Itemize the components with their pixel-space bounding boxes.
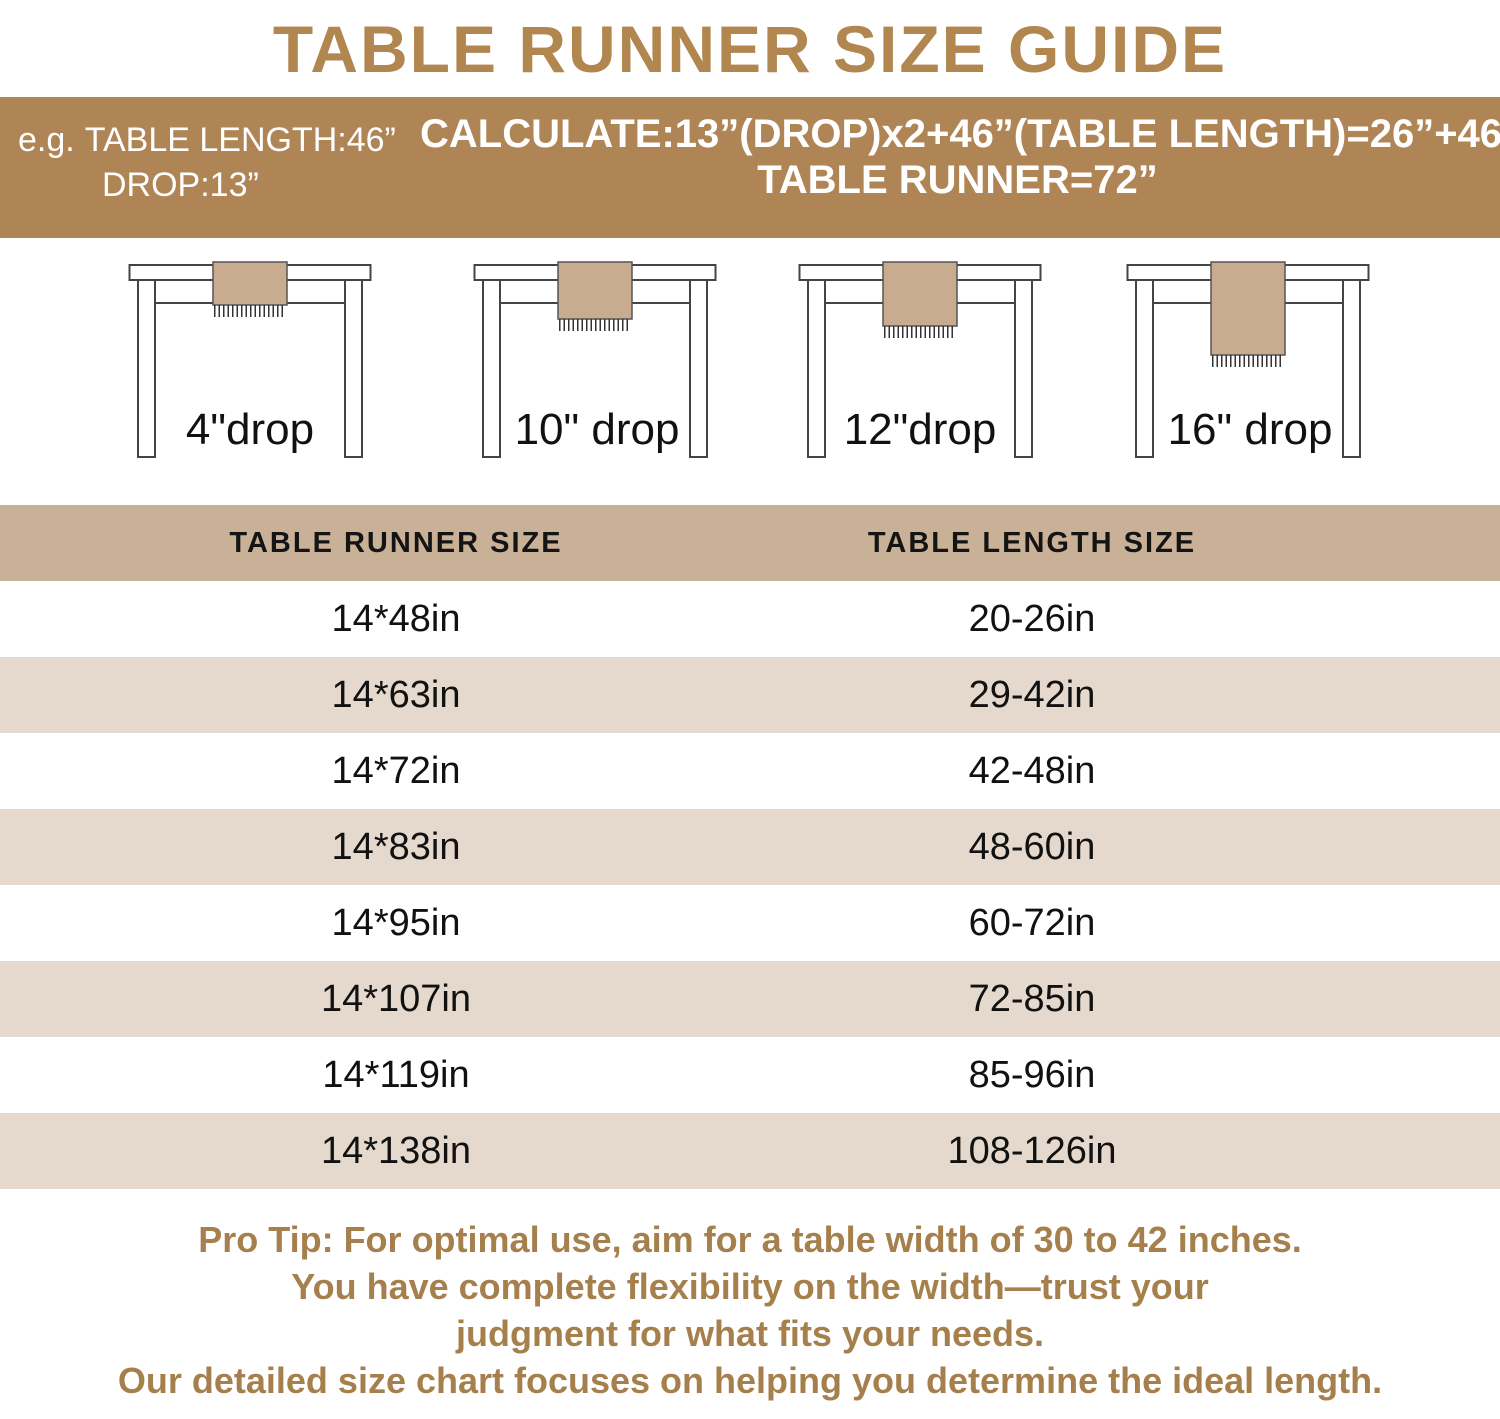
page-title: TABLE RUNNER SIZE GUIDE [0, 0, 1500, 97]
runner-size-cell: 14*138in [321, 1113, 471, 1189]
size-table-header-row: TABLE RUNNER SIZE TABLE LENGTH SIZE [0, 505, 1500, 581]
length-size-header: TABLE LENGTH SIZE [868, 505, 1196, 581]
drop-diagrams: 4"drop 10" drop 12"drop 16" drop [0, 240, 1500, 505]
calc-result: TABLE RUNNER=72” [420, 157, 1495, 203]
example-table-length-line: e.g.TABLE LENGTH:46” [18, 118, 396, 163]
runner-size-cell: 14*83in [332, 809, 461, 885]
length-size-cell: 108-126in [947, 1113, 1116, 1189]
length-size-cell: 85-96in [969, 1037, 1096, 1113]
example-prefix: e.g. [18, 121, 75, 159]
example-drop: DROP:13” [18, 163, 396, 208]
runner-size-cell: 14*119in [322, 1037, 469, 1113]
length-size-cell: 29-42in [969, 657, 1096, 733]
table-row: 14*138in 108-126in [0, 1113, 1500, 1189]
pro-tip-line-1: Pro Tip: For optimal use, aim for a tabl… [0, 1216, 1500, 1263]
size-guide-infographic: TABLE RUNNER SIZE GUIDE e.g.TABLE LENGTH… [0, 0, 1500, 1419]
pro-tip-line-4: Our detailed size chart focuses on helpi… [0, 1357, 1500, 1404]
drop-label-10in: 10" drop [515, 405, 680, 455]
table-row: 14*72in 42-48in [0, 733, 1500, 809]
length-size-cell: 48-60in [969, 809, 1096, 885]
runner-size-cell: 14*72in [332, 733, 461, 809]
runner-size-cell: 14*95in [332, 885, 461, 961]
runner-size-cell: 14*48in [332, 581, 461, 657]
runner-size-header: TABLE RUNNER SIZE [229, 505, 562, 581]
table-row: 14*95in 60-72in [0, 885, 1500, 961]
example-table-length: TABLE LENGTH:46” [85, 121, 396, 159]
length-size-cell: 60-72in [969, 885, 1096, 961]
drop-label-4in: 4"drop [186, 405, 314, 455]
example-banner: e.g.TABLE LENGTH:46” DROP:13” CALCULATE:… [0, 97, 1500, 238]
table-row: 14*83in 48-60in [0, 809, 1500, 885]
table-row: 14*107in 72-85in [0, 961, 1500, 1037]
table-row: 14*48in 20-26in [0, 581, 1500, 657]
table-row: 14*119in 85-96in [0, 1037, 1500, 1113]
size-table: TABLE RUNNER SIZE TABLE LENGTH SIZE 14*4… [0, 505, 1500, 1189]
drop-label-16in: 16" drop [1168, 405, 1333, 455]
drop-label-12in: 12"drop [844, 405, 997, 455]
runner-size-cell: 14*63in [332, 657, 461, 733]
calculation-block: CALCULATE:13”(DROP)x2+46”(TABLE LENGTH)=… [420, 111, 1495, 203]
length-size-cell: 72-85in [969, 961, 1096, 1037]
runner-size-cell: 14*107in [321, 961, 471, 1037]
length-size-cell: 42-48in [969, 733, 1096, 809]
pro-tip: Pro Tip: For optimal use, aim for a tabl… [0, 1216, 1500, 1404]
example-block: e.g.TABLE LENGTH:46” DROP:13” [18, 118, 396, 208]
calc-formula: CALCULATE:13”(DROP)x2+46”(TABLE LENGTH)=… [420, 111, 1495, 157]
pro-tip-line-3: judgment for what fits your needs. [0, 1310, 1500, 1357]
length-size-cell: 20-26in [969, 581, 1096, 657]
pro-tip-line-2: You have complete flexibility on the wid… [0, 1263, 1500, 1310]
table-row: 14*63in 29-42in [0, 657, 1500, 733]
